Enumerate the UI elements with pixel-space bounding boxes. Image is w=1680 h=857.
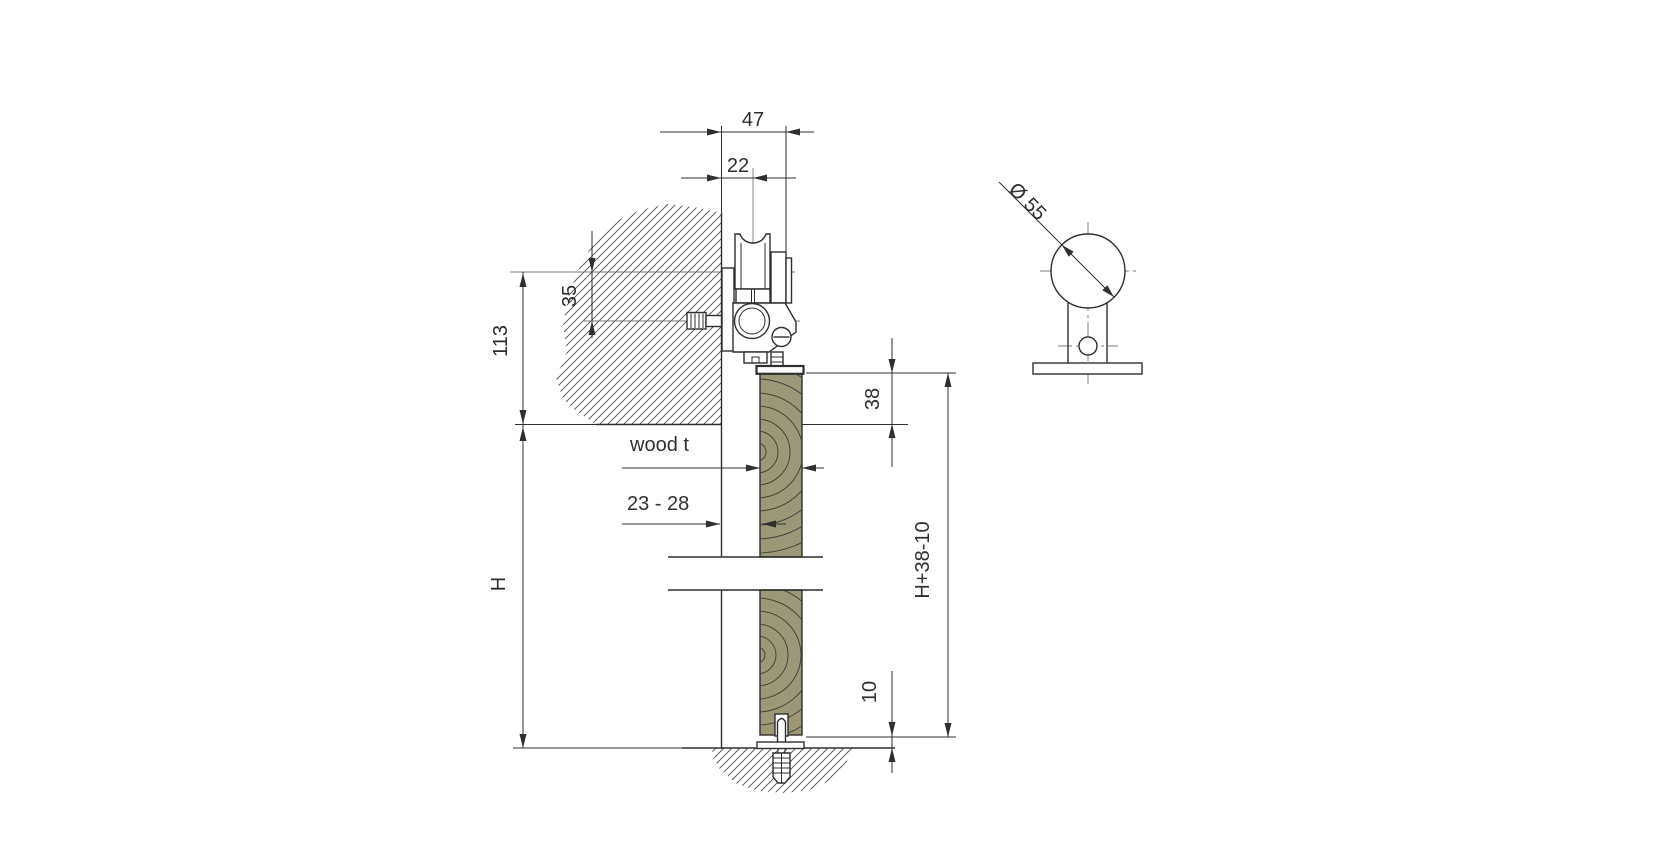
drawing-background <box>0 0 1680 857</box>
clamp-jaws <box>736 289 770 303</box>
clamp-bolt-boss <box>735 304 770 339</box>
roller-bracket-strap <box>771 252 786 303</box>
base-plate-side <box>1033 363 1142 374</box>
guide-base-plate <box>757 742 804 749</box>
dim-overall-projection-label: 47 <box>742 109 764 131</box>
drawing-page: 47 22 35 113 H 38 <box>0 0 1680 857</box>
clamp-lower-block <box>744 352 767 363</box>
dim-floor-clearance-label: 10 <box>859 681 881 703</box>
dim-wall-to-track-label: 22 <box>727 155 749 177</box>
roller-bracket-outer-plate <box>786 258 792 303</box>
dim-opening-height-label: H <box>488 577 510 591</box>
dim-track-to-bolt-label: 35 <box>559 285 581 307</box>
technical-drawing-canvas: 47 22 35 113 H 38 <box>0 0 1680 857</box>
hanger-cap-plate <box>757 366 804 374</box>
floor-anchor-plug <box>773 749 790 784</box>
fixing-hole <box>1079 337 1097 355</box>
hanger-bolt-rod <box>771 352 783 366</box>
dim-track-to-opening-label: 113 <box>490 325 512 357</box>
slotted-adjustment-screw <box>772 328 791 347</box>
wall-mounting-plate <box>722 268 734 351</box>
dim-door-height-label: H+38-10 <box>912 521 934 598</box>
wood-thickness-text: wood t <box>629 434 689 456</box>
lag-screw <box>687 313 722 330</box>
dim-door-overlap-label: 38 <box>862 388 884 410</box>
wall-clearance-text: 23 - 28 <box>627 493 689 515</box>
guide-pin <box>778 719 786 744</box>
